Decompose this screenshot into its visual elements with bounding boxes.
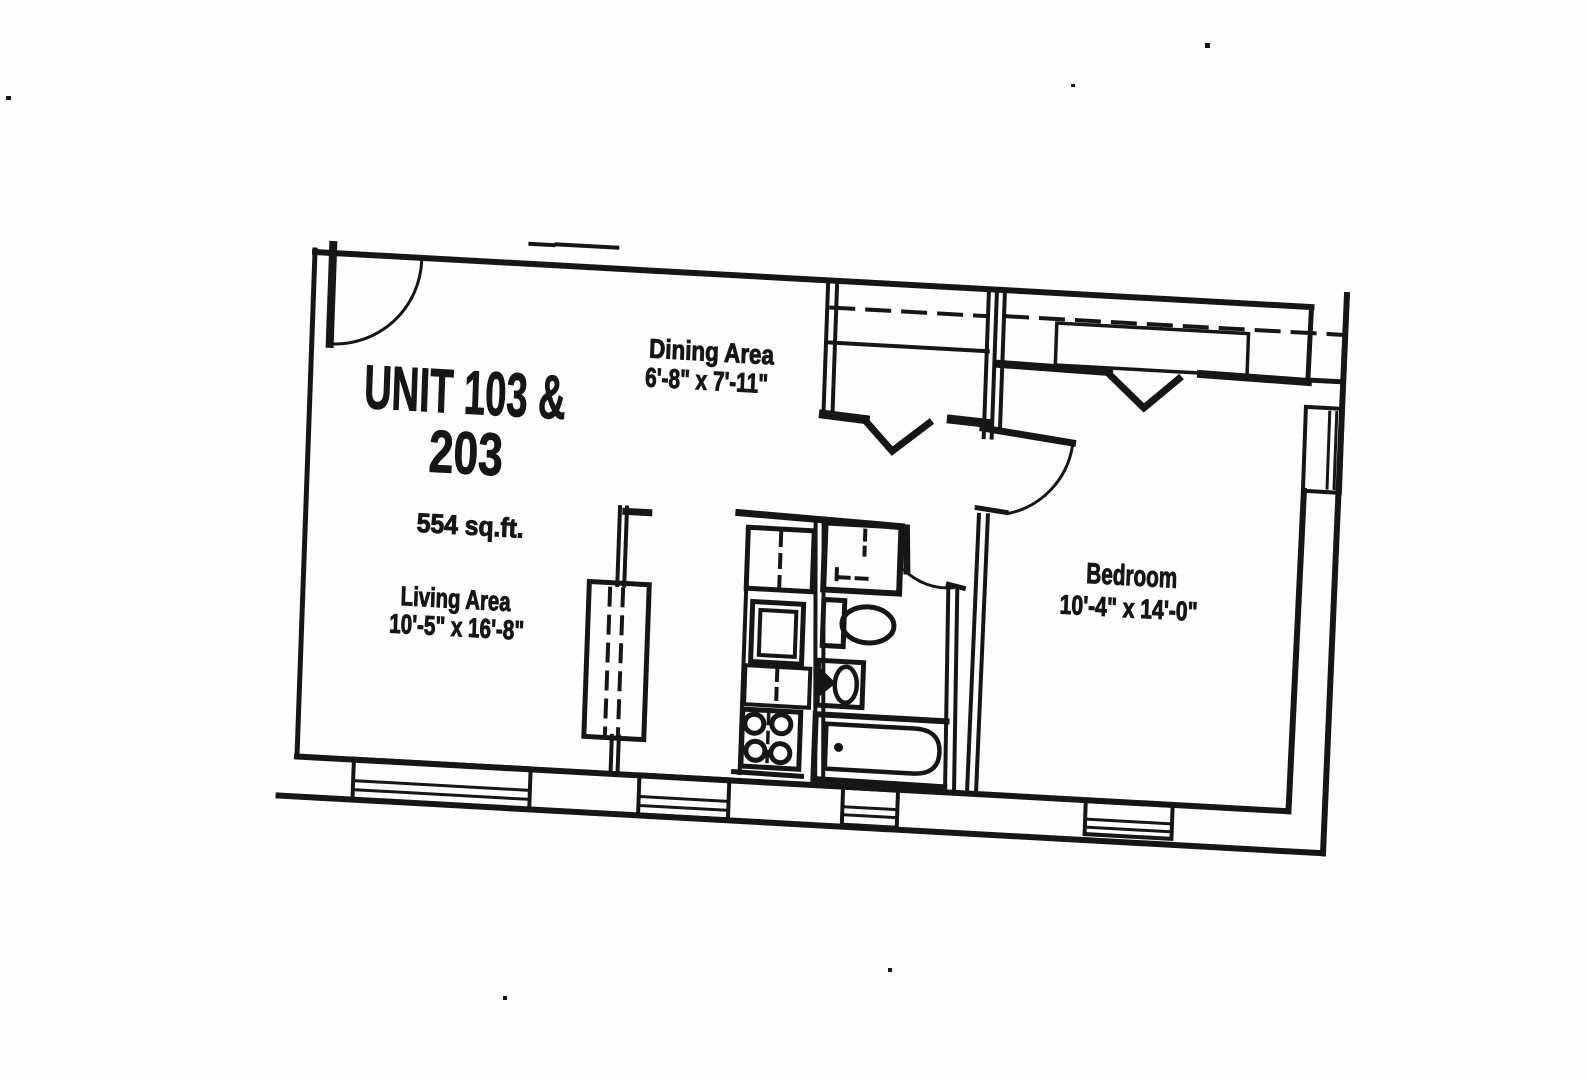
svg-text:203: 203 — [428, 418, 504, 489]
svg-text:554 sq.ft.: 554 sq.ft. — [416, 508, 524, 544]
svg-text:Bedroom: Bedroom — [1086, 558, 1178, 595]
